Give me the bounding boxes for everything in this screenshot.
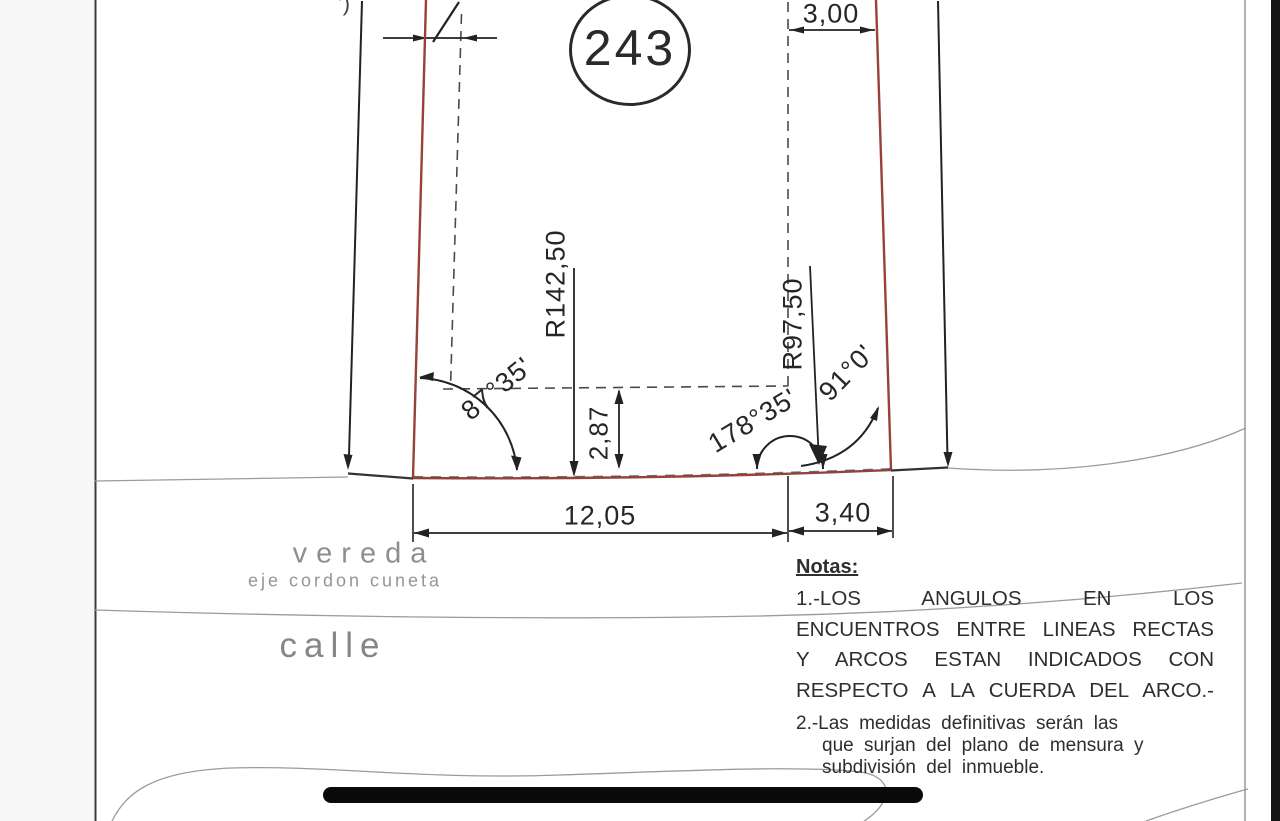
dim-tick-top [433, 2, 459, 42]
note2-line: 2.-Las medidas definitivas serán las [796, 713, 1214, 735]
note1-line: 1.-LOS ANGULOS EN LOS [796, 587, 1214, 618]
notes-title: Notas: [796, 556, 1214, 579]
note1-line: Y ARCOS ESTAN INDICADOS CON [796, 648, 1214, 679]
dim-radius-left: R142,50 [541, 229, 572, 338]
note2: 2.-Las medidas definitivas serán las que… [796, 713, 1214, 779]
note1-line: ENCUENTROS ENTRE LINEAS RECTAS [796, 618, 1214, 649]
label-street: calle [280, 626, 387, 666]
note2-line: que surjan del plano de mensura y [796, 735, 1214, 757]
note1-line: RESPECTO A LA CUERDA DEL ARCO.- [796, 679, 1214, 710]
dim-depth-offset: 2,87 [584, 406, 615, 461]
dim-front-offset: 3,00 [803, 0, 860, 30]
redaction-bar [323, 787, 923, 803]
dim-front-side: 3,40 [815, 498, 872, 529]
label-sidewalk: vereda [293, 538, 436, 571]
angle-arc-right [801, 408, 878, 466]
left-lot-line [349, 1, 362, 462]
lot-number: 243 [584, 19, 676, 77]
dim-front-main: 12,05 [564, 501, 637, 532]
label-curb-axis: eje cordon cuneta [248, 571, 442, 592]
right-lot-line [938, 1, 948, 459]
dim-radius-right: R97,50 [778, 277, 809, 370]
cropped-text-fragment: ’) [338, 0, 350, 17]
note2-line: subdivisión del inmueble. [796, 757, 1214, 779]
street-curve-right [1146, 789, 1248, 821]
survey-plan-scan: 243 ’) 3,00 R142,50 R97,50 2,87 12,05 3,… [0, 0, 1280, 821]
radius-leader-right [810, 266, 819, 452]
notes-block: Notas: 1.-LOS ANGULOS EN LOS ENCUENTROS … [796, 556, 1214, 779]
